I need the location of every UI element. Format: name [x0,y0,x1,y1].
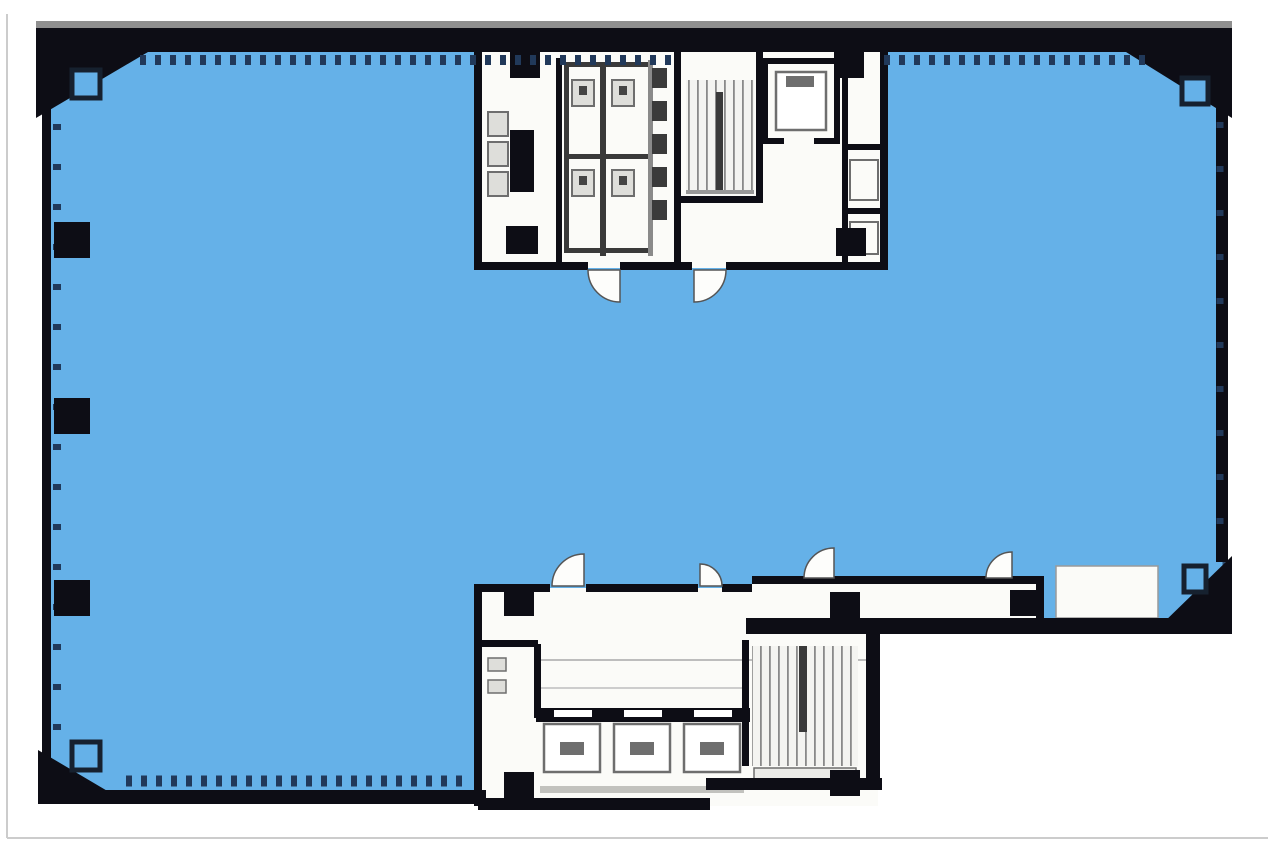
south-elevator-bank [544,724,740,772]
floor-plan-drawing [0,0,1280,847]
wall-right [1216,106,1228,562]
wall-left [42,52,51,768]
column [54,222,90,258]
perimeter-balcony-notch [1056,566,1158,618]
sink-fixture [488,142,508,166]
corner-column-bay [72,70,100,98]
column [834,50,864,78]
elevator-door-gap [784,138,814,144]
column [54,580,90,616]
column [1010,590,1038,616]
urinal-fixture [652,134,667,154]
column [836,228,866,256]
vestibule-fixture [488,680,506,693]
column [504,772,534,798]
corner-column-bay [72,742,100,770]
elevator-label-mark [700,742,724,755]
elevator-label-mark [560,742,584,755]
urinal-fixture [652,101,667,121]
duct-shaft [510,130,534,192]
north-elevator [776,72,826,130]
urinal-fixture [652,200,667,220]
sink-fixture [488,172,508,196]
elevator-label-mark [630,742,654,755]
wall-top [36,28,1232,52]
elevator-label-mark [786,76,814,87]
vestibule-fixture [488,658,506,671]
wall-core-right [866,624,880,786]
column [506,226,538,254]
urinal-fixture [652,68,667,88]
column [504,590,534,616]
north-staircase [686,80,754,194]
wall-bottom-right-wing [746,618,1232,634]
wall-core-bottom-a [478,798,710,810]
column [830,592,860,618]
corner-column-bay [1182,78,1208,104]
south-staircase [752,646,858,784]
column [830,770,860,796]
wall-bottom-left-wing [38,790,486,804]
floor-plan-page [0,0,1280,847]
sink-fixture [488,112,508,136]
column [54,398,90,434]
corner-column-bay [1184,566,1206,592]
urinal-fixture [652,167,667,187]
